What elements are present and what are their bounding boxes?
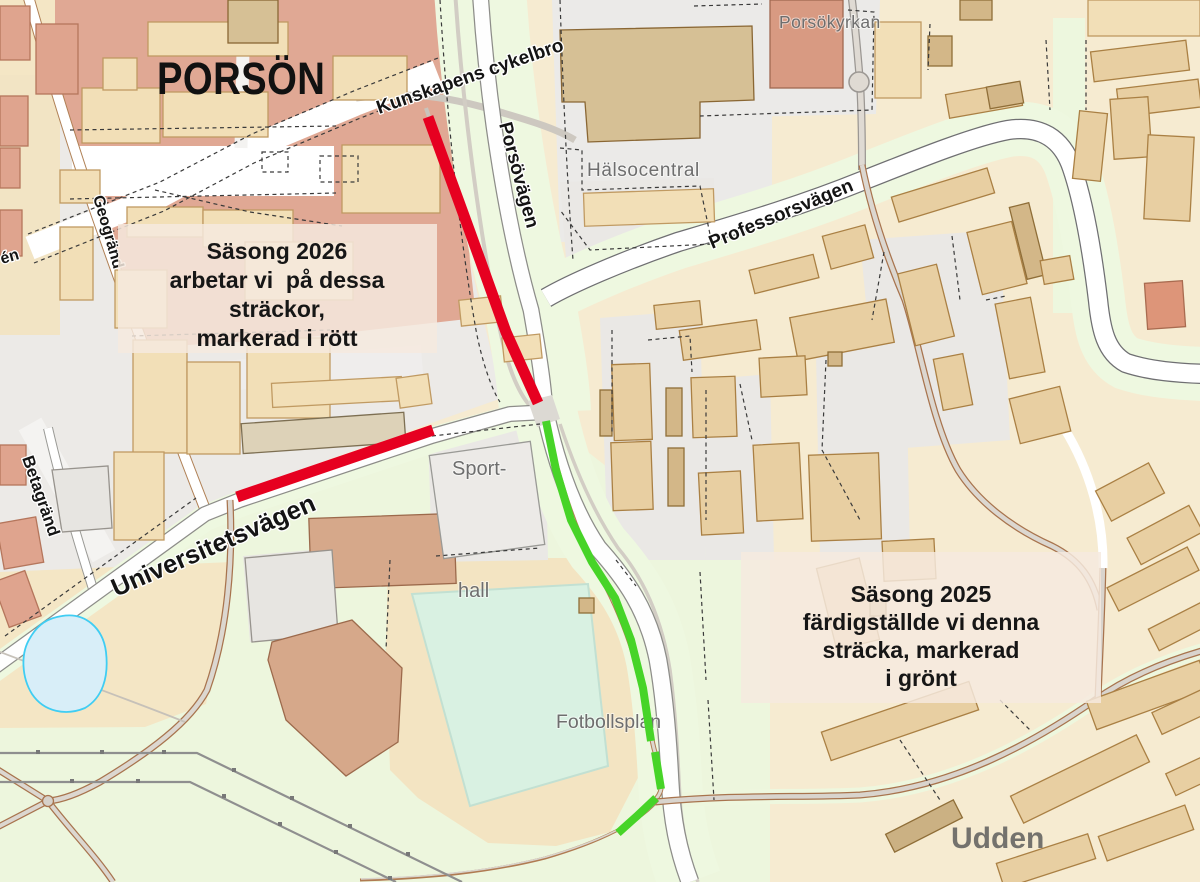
svg-text:Hälsocentral: Hälsocentral — [587, 160, 700, 181]
svg-text:sträckor,: sträckor, — [229, 296, 325, 322]
svg-text:Säsong 2026: Säsong 2026 — [207, 238, 348, 264]
svg-text:PORSÖN: PORSÖN — [157, 53, 325, 104]
svg-text:Udden: Udden — [951, 822, 1044, 855]
svg-text:Sport-: Sport- — [452, 458, 506, 480]
svg-text:sträcka, markerad: sträcka, markerad — [823, 637, 1020, 663]
svg-text:i grönt: i grönt — [885, 665, 957, 691]
svg-text:Porsökyrkan: Porsökyrkan — [779, 12, 881, 32]
svg-text:hall: hall — [458, 580, 489, 602]
svg-text:arbetar vi på dessa: arbetar vi på dessa — [170, 267, 385, 293]
svg-text:markerad i rött: markerad i rött — [196, 325, 357, 351]
svg-text:färdigställde vi denna: färdigställde vi denna — [803, 609, 1040, 635]
svg-text:Säsong 2025: Säsong 2025 — [851, 581, 992, 607]
